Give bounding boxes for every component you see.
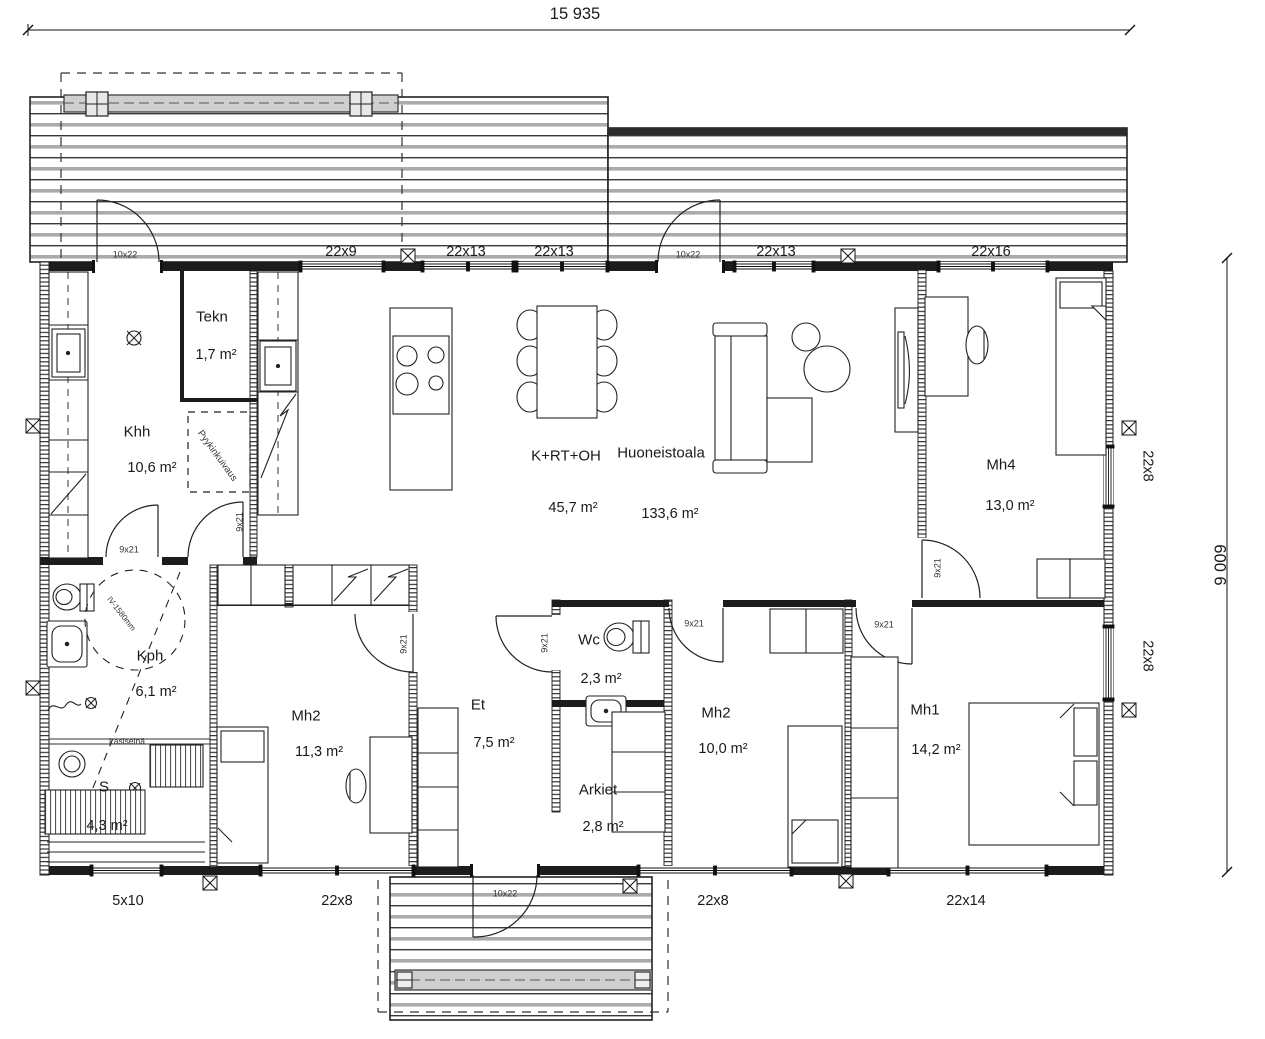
hall-closets: [218, 565, 409, 605]
kitchen-cabinets: [258, 272, 298, 515]
floor-plan-page: 15 9359 009Tekn1,7 m²Khh10,6 m²K+RT+OH45…: [0, 0, 1265, 1039]
mh2b-bed: [788, 726, 842, 867]
mh4-nightstands: [1037, 559, 1105, 598]
window-22x8-bottom-left: [259, 865, 415, 876]
window-22x9: [299, 261, 385, 272]
wc-toilet: [604, 621, 649, 653]
khh-cabinets: [49, 272, 88, 558]
et-closets: [418, 708, 458, 867]
side-table-large: [804, 346, 850, 392]
bottom-terrace: [378, 877, 668, 1020]
kph-sink: [47, 621, 87, 667]
mh1-wardrobes: [851, 657, 898, 868]
window-22x14: [887, 865, 1048, 876]
tv-bench: [895, 308, 918, 432]
pergola-beam: [64, 92, 398, 116]
window-22x8-bottom-right: [637, 865, 793, 876]
mh2b-closets: [770, 609, 843, 653]
mh1-bed: [969, 703, 1099, 845]
window-22x13-a: [421, 261, 515, 272]
window-22x13-b: [515, 261, 609, 272]
window-22x13-c: [733, 261, 815, 272]
kitchen-island: [390, 308, 452, 490]
terrace-railing: [395, 970, 652, 990]
kph-toilet: [53, 584, 94, 611]
window-22x8-right-bottom: [1103, 625, 1114, 701]
floor-plan-drawing: [0, 0, 1265, 1039]
window-22x16: [937, 261, 1049, 272]
mh2a-bed: [217, 727, 268, 863]
mh4-bed: [1056, 278, 1106, 455]
arkiet-closets: [612, 712, 665, 832]
window-5x10: [90, 865, 163, 876]
side-table-small: [792, 323, 820, 351]
dining-set: [517, 306, 617, 418]
top-terrace: [30, 73, 1127, 262]
